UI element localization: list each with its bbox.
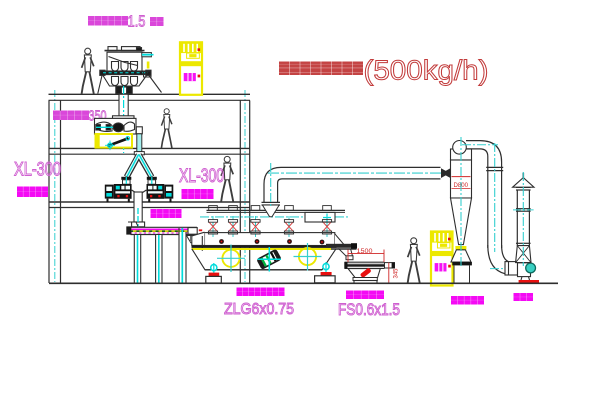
svg-text:ZLG6x0.75: ZLG6x0.75 — [224, 301, 294, 318]
svg-text:1500: 1500 — [357, 248, 373, 255]
svg-text:FS0.6x1.5: FS0.6x1.5 — [338, 301, 400, 319]
svg-text:345: 345 — [394, 268, 400, 279]
svg-text:XL-300: XL-300 — [14, 160, 61, 181]
svg-text:1.5: 1.5 — [128, 14, 146, 31]
svg-text:XL-300: XL-300 — [179, 166, 224, 187]
svg-text:(500kg/h): (500kg/h) — [364, 55, 489, 86]
